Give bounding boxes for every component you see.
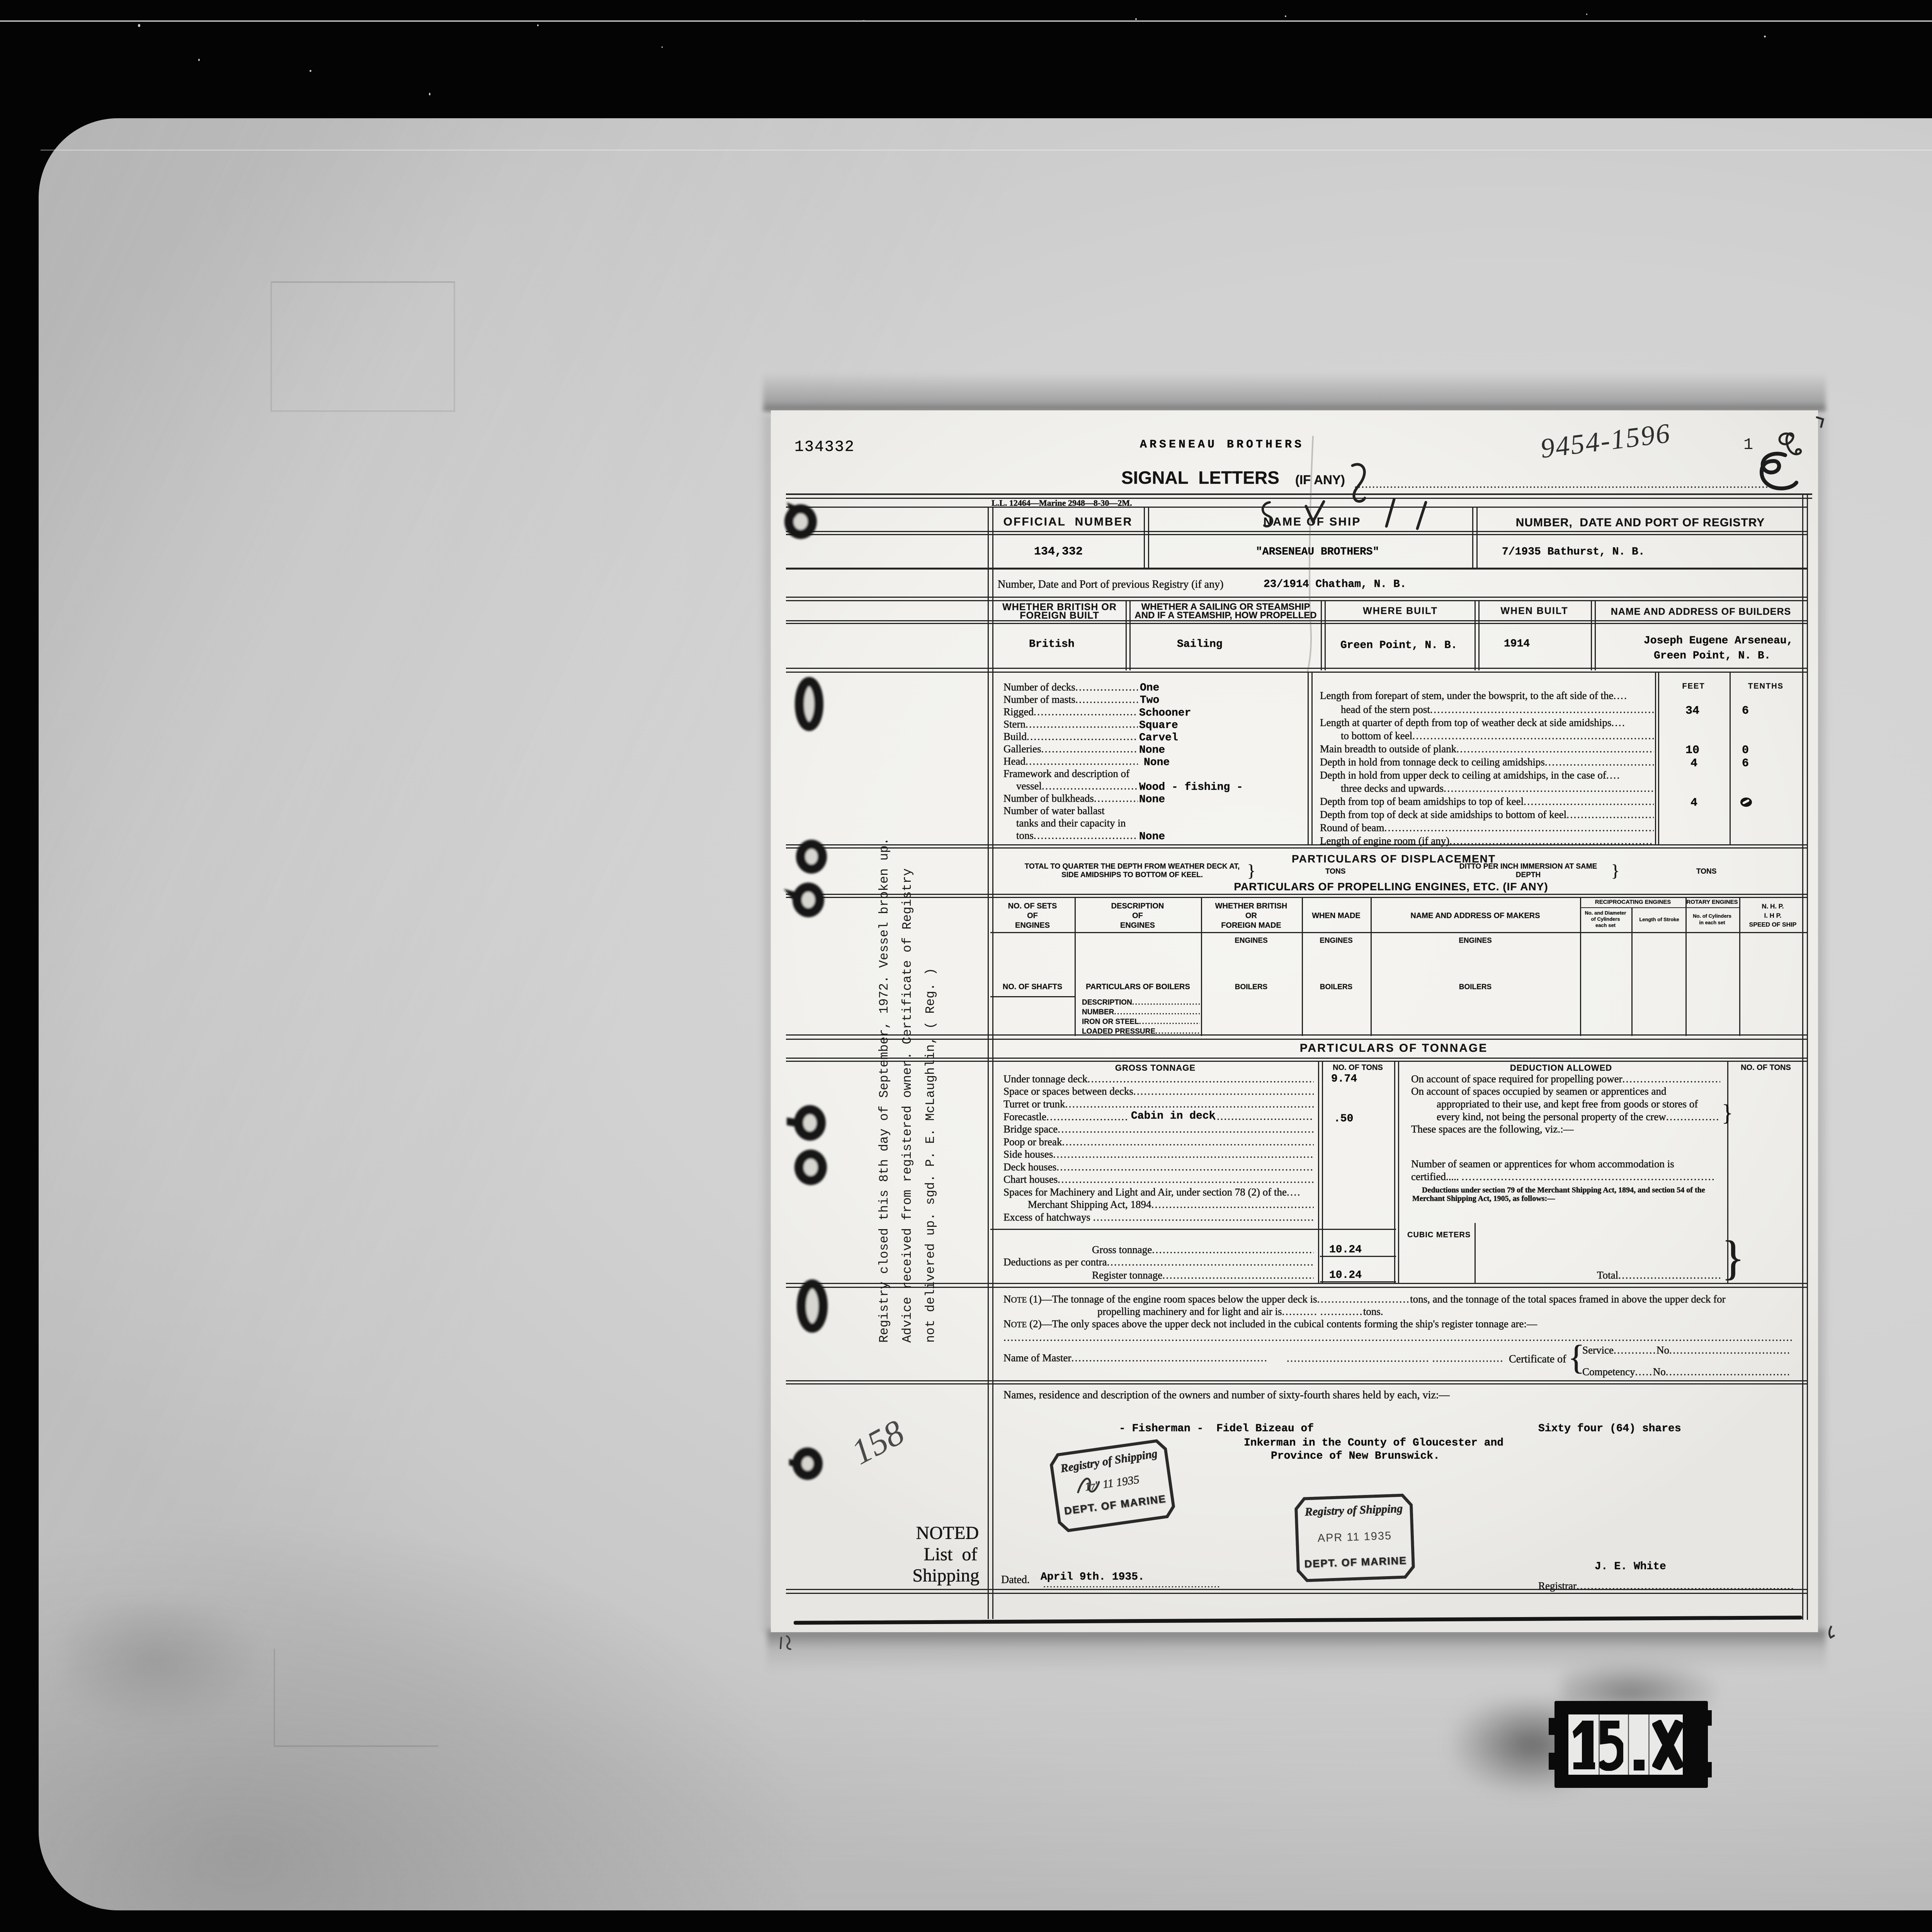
- svg-text:9454-1596: 9454-1596: [1539, 417, 1672, 464]
- svg-text:1: 1: [1743, 435, 1753, 454]
- svg-text:158: 158: [845, 1412, 911, 1472]
